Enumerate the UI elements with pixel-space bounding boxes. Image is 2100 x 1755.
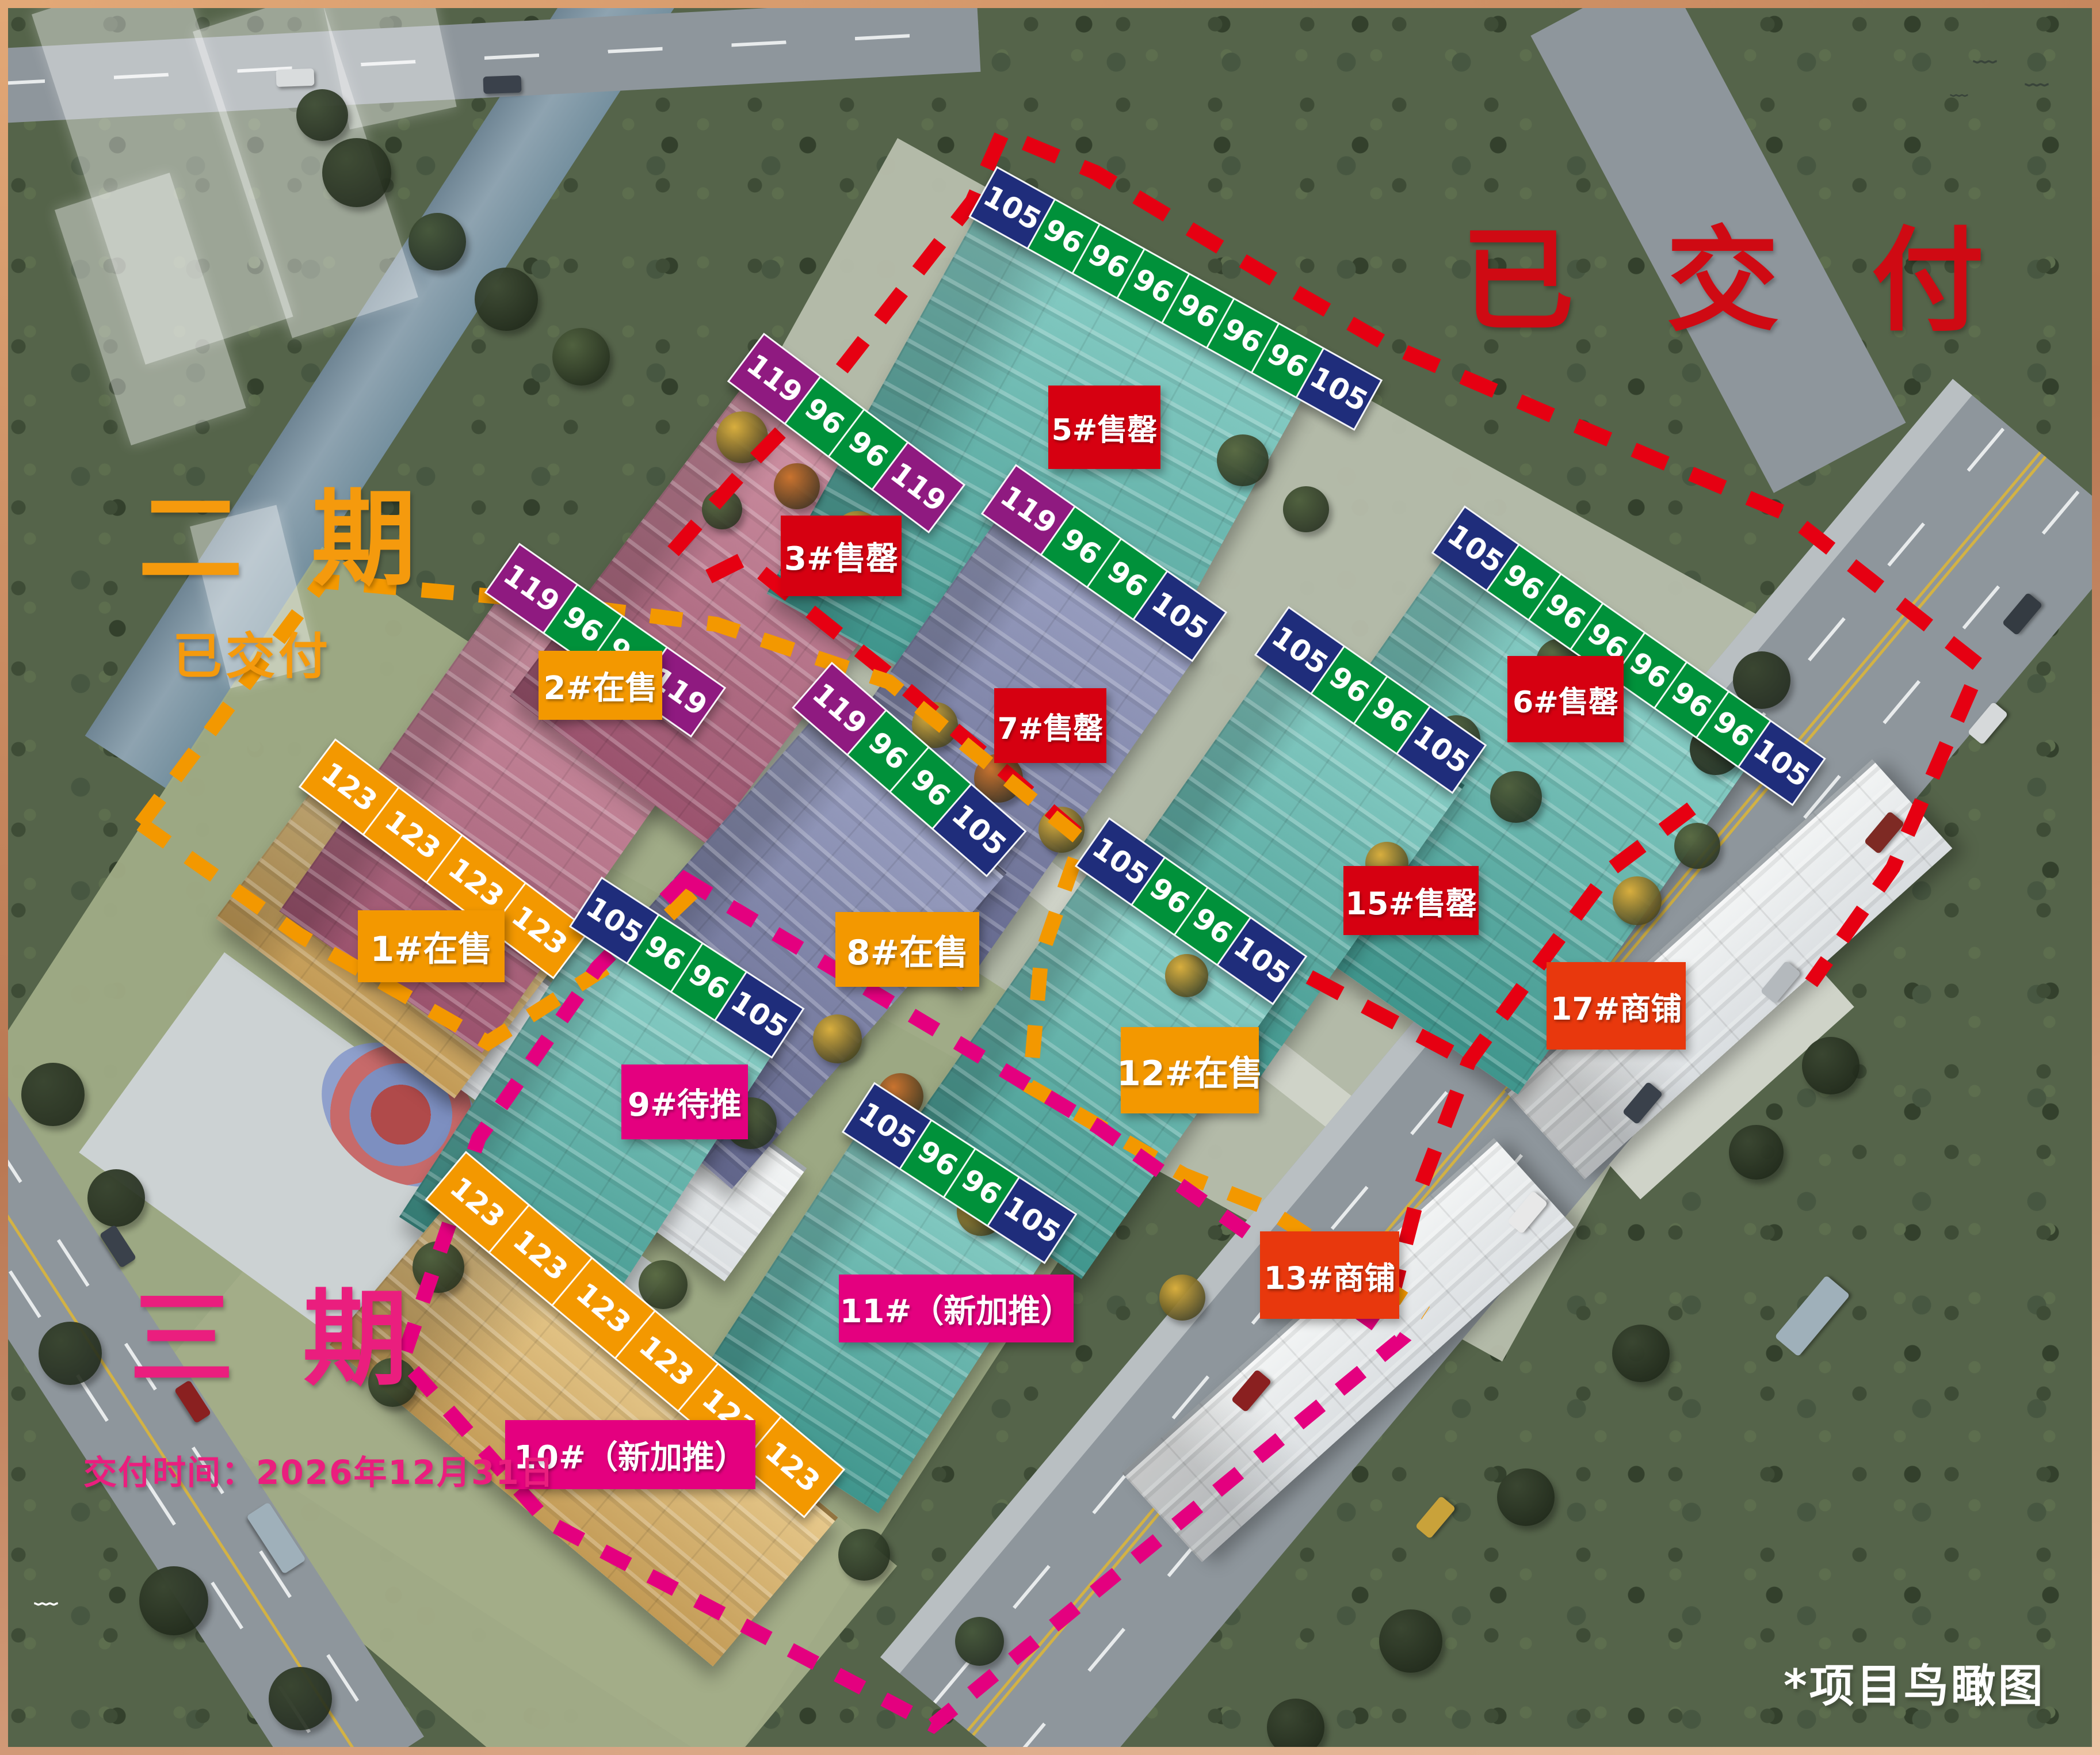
building-7-label: 7#售罄 xyxy=(994,688,1106,763)
tree xyxy=(1802,1037,1860,1094)
building-12-label: 12#在售 xyxy=(1121,1027,1259,1113)
building-15-label: 15#售罄 xyxy=(1343,866,1479,935)
tree xyxy=(838,1529,890,1581)
vehicle xyxy=(1774,1275,1850,1357)
tree xyxy=(1038,807,1085,853)
bird-icon: ﹏ xyxy=(1950,75,1968,100)
delivered-banner: 已 交 付 xyxy=(1461,190,2010,353)
tree xyxy=(1613,876,1662,925)
tree xyxy=(702,489,742,529)
bird-icon: ﹏ xyxy=(1973,35,1996,68)
tree xyxy=(1490,771,1542,823)
tree xyxy=(716,411,768,463)
building-6-label: 6#售罄 xyxy=(1507,656,1624,742)
tree xyxy=(1674,823,1720,869)
bird-icon: ﹏ xyxy=(2025,58,2048,91)
tree xyxy=(955,1617,1004,1666)
tree xyxy=(1379,1609,1442,1673)
tree xyxy=(87,1169,145,1227)
bird-icon: ﹏ xyxy=(35,1577,58,1610)
tree xyxy=(774,463,820,509)
building-1-label: 1#在售 xyxy=(358,910,505,982)
building-13-label: 13#商铺 xyxy=(1260,1231,1399,1319)
tree xyxy=(269,1667,332,1730)
tree xyxy=(21,1063,85,1126)
vehicle xyxy=(483,75,521,94)
tree xyxy=(1165,954,1208,997)
phase3-delivery: 交付时间：2026年12月31日 xyxy=(83,1445,555,1494)
tree xyxy=(322,138,391,207)
building-3-label: 3#售罄 xyxy=(781,516,902,596)
tree xyxy=(296,89,348,141)
phase2-subtitle: 已交付 xyxy=(173,616,331,688)
building-17-label: 17#商铺 xyxy=(1547,962,1686,1050)
tree xyxy=(813,1014,862,1063)
building-11-label: 11#（新加推） xyxy=(839,1275,1074,1342)
building-5-label: 5#售罄 xyxy=(1048,386,1160,469)
footnote: *项目鸟瞰图 xyxy=(1784,1650,2045,1715)
phase3-title: 三 期 xyxy=(129,1254,423,1406)
tree xyxy=(139,1566,208,1635)
tree xyxy=(1267,1699,1324,1755)
tree xyxy=(1497,1468,1555,1526)
building-8-label: 8#在售 xyxy=(835,912,979,987)
project-aerial-view: 123123123123 1199696119 1199696119 10596… xyxy=(0,0,2100,1755)
tree xyxy=(408,213,466,270)
vehicle xyxy=(1415,1495,1456,1539)
tree xyxy=(1729,1125,1784,1180)
tree xyxy=(1217,434,1269,486)
tree xyxy=(1283,486,1329,532)
phase2-title: 二 期 xyxy=(138,455,432,606)
tree xyxy=(1159,1275,1205,1321)
building-9-label: 9#待推 xyxy=(621,1065,748,1139)
building-2-label: 2#在售 xyxy=(539,651,662,720)
vehicle xyxy=(276,68,314,87)
tree xyxy=(39,1322,102,1385)
tree xyxy=(1612,1325,1670,1382)
tree xyxy=(475,268,538,331)
tree xyxy=(552,328,610,386)
